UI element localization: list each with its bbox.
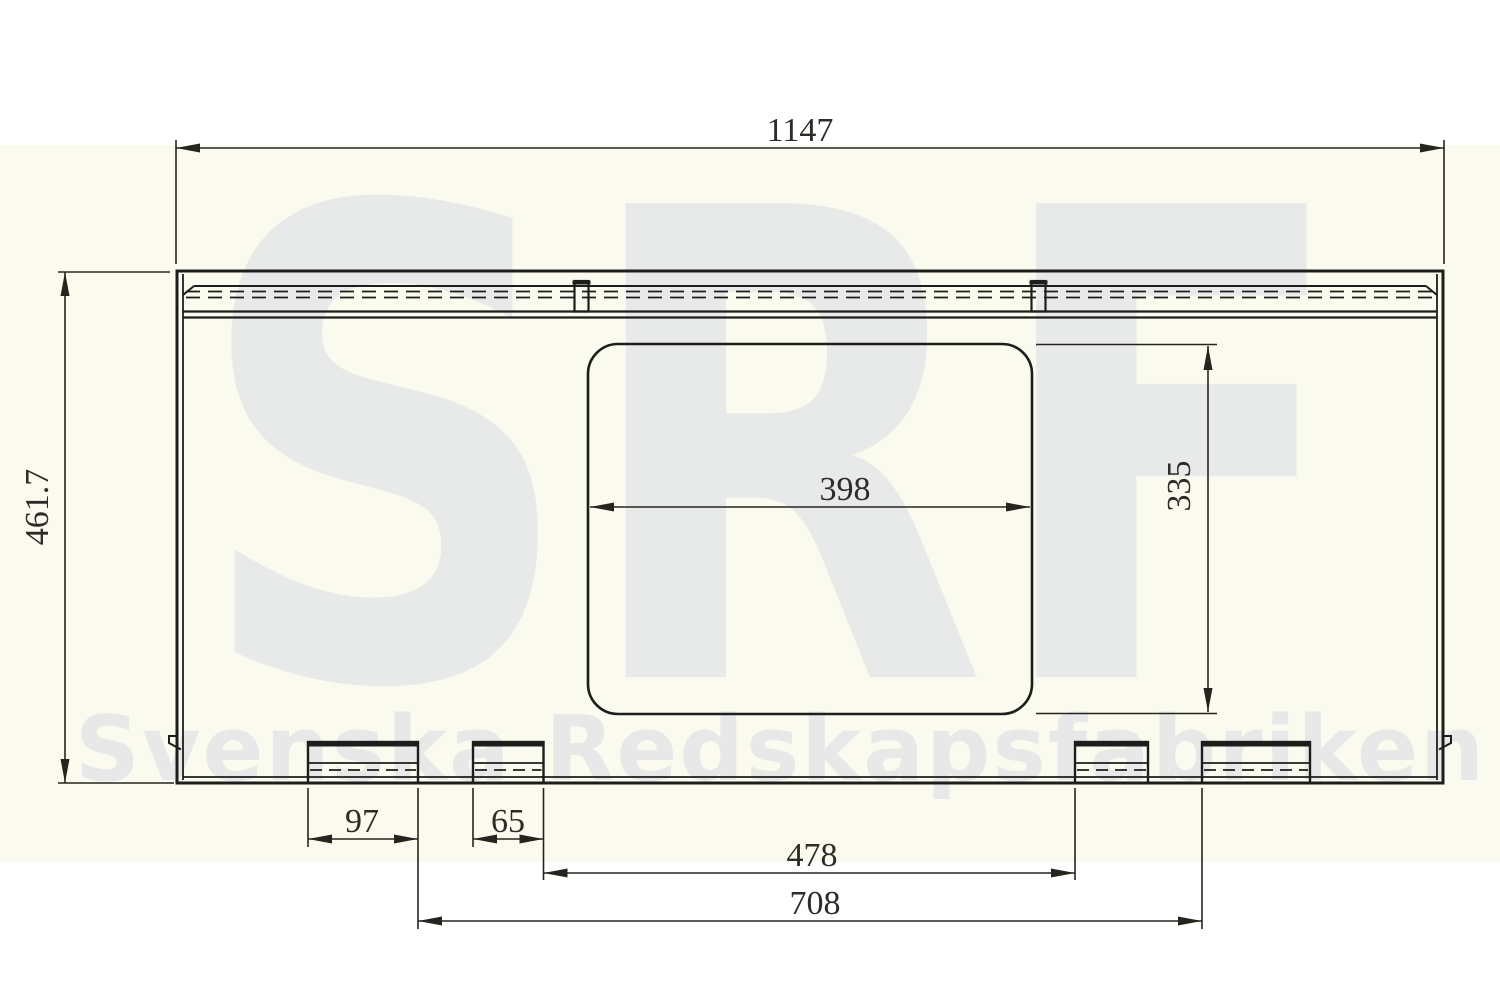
- dimension-outer-tab-width: 97: [308, 788, 418, 929]
- overall-width-label: 1147: [767, 112, 834, 149]
- dimension-inner-tab-width: 65: [473, 788, 544, 880]
- dimension-overall-height: 461.7: [19, 272, 174, 783]
- side-notch-right: [1439, 736, 1451, 750]
- inner-tab-spacing-label: 478: [787, 837, 838, 874]
- dimension-opening-width: 398: [590, 471, 1030, 512]
- center-opening: [588, 344, 1032, 714]
- side-notch-left: [169, 736, 181, 750]
- overall-height-label: 461.7: [19, 469, 56, 546]
- plate-outline: [177, 271, 1443, 783]
- outer-tab-spacing-label: 708: [790, 885, 841, 922]
- dimension-opening-height: 335: [1036, 345, 1217, 714]
- outer-tab-width-label: 97: [345, 803, 379, 840]
- opening-width-label: 398: [820, 471, 871, 508]
- top-attachment-channel: [183, 281, 1437, 318]
- opening-height-label: 335: [1161, 461, 1198, 512]
- inner-tab-width-label: 65: [491, 803, 525, 840]
- dimension-overall-width: 1147: [176, 112, 1444, 264]
- dimension-inner-tab-spacing: 478: [544, 788, 1076, 880]
- technical-drawing: 1147 461.7 398 335 97: [0, 0, 1500, 1000]
